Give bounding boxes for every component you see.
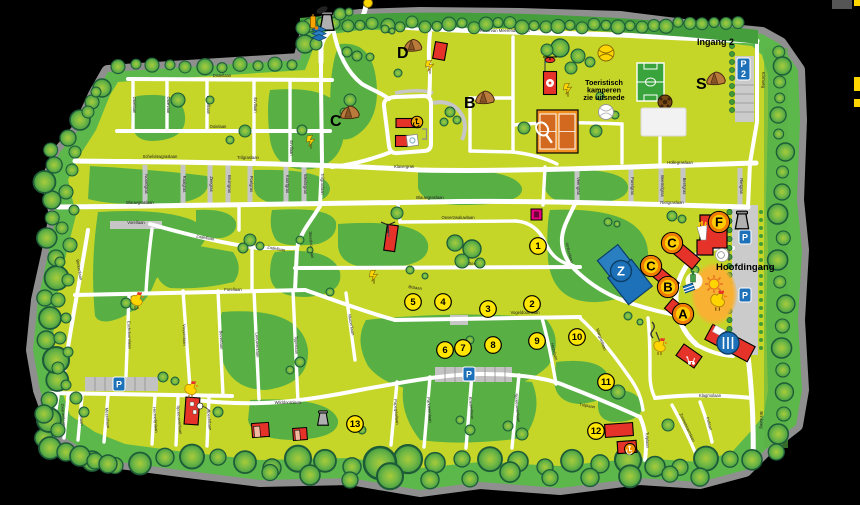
svg-text:Poelgras: Poelgras: [249, 176, 254, 193]
svg-text:Klagmolaan: Klagmolaan: [699, 393, 722, 398]
svg-text:13: 13: [350, 419, 361, 430]
svg-text:Weidegras: Weidegras: [303, 174, 308, 194]
svg-text:Rietgraslaan: Rietgraslaan: [660, 200, 684, 205]
svg-text:Vossenlaan: Vossenlaan: [182, 324, 188, 346]
svg-text:Eschdoornlaan: Eschdoornlaan: [127, 321, 133, 350]
svg-text:C: C: [330, 113, 342, 130]
svg-text:3: 3: [485, 304, 490, 315]
svg-text:Z: Z: [617, 264, 625, 279]
svg-text:Ervtlaan: Ervtlaan: [289, 140, 294, 156]
svg-text:Wilddoornlaan: Wilddoornlaan: [275, 400, 302, 405]
svg-text:Oeverzwaluwlaan: Oeverzwaluwlaan: [441, 215, 475, 220]
svg-text:10: 10: [572, 332, 583, 343]
svg-text:Bentgras: Bentgras: [682, 178, 687, 195]
svg-text:Ooielaan: Ooielaan: [210, 124, 227, 129]
svg-text:D: D: [397, 45, 409, 62]
svg-text:Beemdgras: Beemdgras: [660, 175, 665, 196]
svg-text:Tijgerlaan: Tijgerlaan: [294, 336, 300, 355]
svg-text:Beverlaan: Beverlaan: [219, 330, 225, 350]
svg-text:5: 5: [410, 297, 416, 308]
svg-text:9: 9: [534, 336, 539, 347]
svg-text:Vorellaan: Vorellaan: [127, 220, 145, 225]
svg-text:Leeuwenlaan: Leeuwenlaan: [255, 332, 261, 358]
svg-text:P: P: [742, 233, 748, 243]
svg-text:Noordgras: Noordgras: [144, 174, 149, 194]
svg-text:C: C: [667, 236, 677, 251]
svg-text:8: 8: [490, 340, 495, 351]
svg-text:Krimweg: Krimweg: [761, 72, 766, 89]
svg-text:Brinkweg: Brinkweg: [759, 411, 764, 429]
svg-text:Ervtlaan: Ervtlaan: [253, 97, 258, 113]
svg-text:P: P: [740, 59, 746, 69]
svg-text:6: 6: [442, 345, 447, 356]
svg-text:Rietgras: Rietgras: [739, 178, 744, 194]
svg-text:11: 11: [601, 377, 612, 388]
svg-text:S: S: [696, 76, 707, 93]
svg-text:4: 4: [440, 297, 446, 308]
svg-text:2: 2: [741, 69, 746, 79]
svg-text:Koortgras: Koortgras: [285, 175, 290, 193]
svg-text:12: 12: [591, 426, 602, 437]
svg-text:Ooievaar: Ooievaar: [166, 97, 171, 115]
svg-text:Hollegraslaan: Hollegraslaan: [667, 160, 693, 165]
svg-text:P: P: [116, 380, 122, 390]
svg-text:7: 7: [460, 343, 465, 354]
svg-text:Bruingras: Bruingras: [227, 175, 232, 193]
svg-text:Zeegras: Zeegras: [209, 176, 214, 191]
svg-text:Tulplaan: Tulplaan: [645, 432, 651, 449]
svg-text:Blauwgraslaan: Blauwgraslaan: [416, 195, 444, 200]
svg-text:Klavergras: Klavergras: [394, 164, 414, 169]
svg-text:2: 2: [529, 299, 534, 310]
svg-text:P: P: [466, 370, 472, 380]
svg-text:Parelgras: Parelgras: [630, 177, 635, 195]
svg-text:Trilgraslaan: Trilgraslaan: [320, 173, 325, 195]
svg-text:Ooielaan: Ooielaan: [132, 97, 137, 114]
svg-text:Trilgraslaan: Trilgraslaan: [237, 155, 259, 160]
svg-text:Distellaan: Distellaan: [213, 73, 232, 78]
svg-text:P: P: [742, 291, 748, 301]
svg-text:1: 1: [535, 241, 541, 252]
svg-text:C: C: [646, 259, 656, 274]
svg-text:Forellaan: Forellaan: [224, 287, 242, 292]
svg-text:F: F: [715, 215, 723, 230]
svg-text:Hoofdingang: Hoofdingang: [716, 262, 775, 273]
svg-text:zie uitsnede: zie uitsnede: [583, 93, 624, 102]
svg-text:Veengras: Veengras: [576, 177, 581, 195]
svg-text:B: B: [663, 280, 672, 295]
svg-text:Raaigras: Raaigras: [182, 176, 187, 193]
svg-text:B: B: [464, 95, 476, 112]
svg-text:Ingang 2: Ingang 2: [697, 37, 734, 47]
svg-text:Schelviswgraslaan: Schelviswgraslaan: [143, 154, 178, 159]
svg-text:Blauwgraslaan: Blauwgraslaan: [126, 200, 154, 205]
svg-text:A: A: [678, 307, 688, 322]
